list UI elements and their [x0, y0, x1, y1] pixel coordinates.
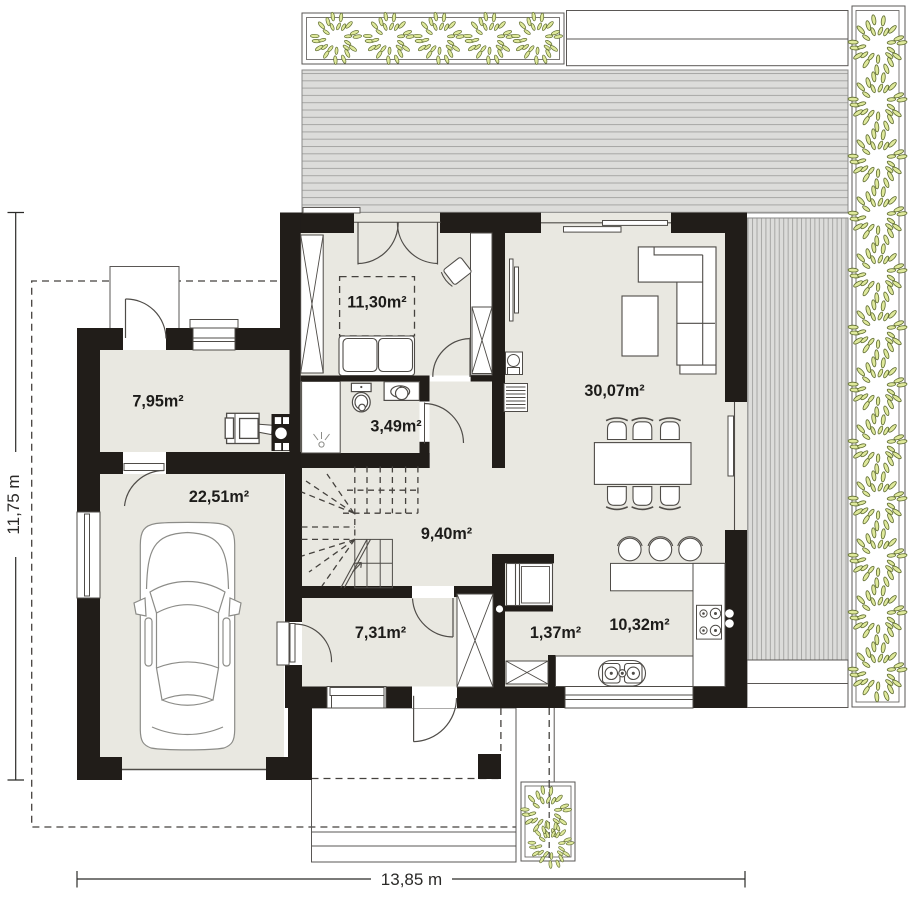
svg-text:13,85 m: 13,85 m	[381, 870, 442, 889]
svg-text:9,40m²: 9,40m²	[421, 525, 473, 543]
svg-text:11,30m²: 11,30m²	[347, 294, 407, 312]
svg-text:30,07m²: 30,07m²	[584, 382, 645, 400]
svg-text:7,95m²: 7,95m²	[132, 393, 184, 411]
svg-text:22,51m²: 22,51m²	[189, 488, 250, 506]
svg-text:7,31m²: 7,31m²	[355, 624, 407, 642]
svg-text:11,75 m: 11,75 m	[4, 474, 23, 534]
svg-text:1,37m²: 1,37m²	[530, 624, 582, 642]
svg-text:10,32m²: 10,32m²	[609, 616, 670, 634]
svg-text:3,49m²: 3,49m²	[370, 418, 422, 436]
